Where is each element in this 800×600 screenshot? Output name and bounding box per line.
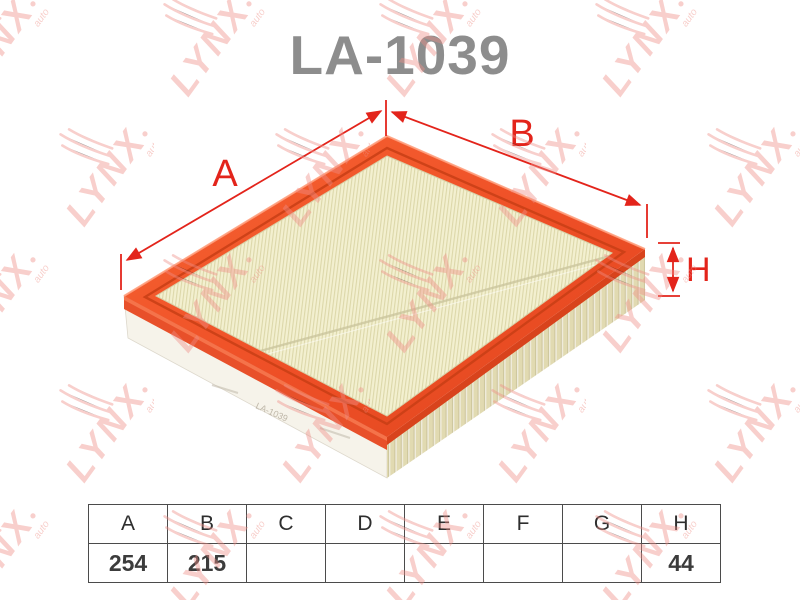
header-cell-a: A: [89, 505, 168, 544]
value-cell-c: [247, 544, 326, 583]
value-cell-f: [484, 544, 563, 583]
part-number-title: LA-1039: [0, 28, 800, 83]
dimension-b-label: B: [509, 113, 534, 155]
header-cell-d: D: [326, 505, 405, 544]
header-cell-b: B: [168, 505, 247, 544]
header-cell-c: C: [247, 505, 326, 544]
value-cell-d: [326, 544, 405, 583]
dimensions-table-value-row: 254 215 44: [89, 544, 721, 583]
header-cell-h: H: [642, 505, 721, 544]
dimension-a-label: A: [212, 153, 238, 195]
value-cell-a: 254: [89, 544, 168, 583]
header-cell-e: E: [405, 505, 484, 544]
dimension-h-label: H: [686, 251, 711, 289]
value-cell-e: [405, 544, 484, 583]
value-cell-b: 215: [168, 544, 247, 583]
header-cell-f: F: [484, 505, 563, 544]
dimensions-table-header-row: A B C D E F G H: [89, 505, 721, 544]
value-cell-h: 44: [642, 544, 721, 583]
value-cell-g: [563, 544, 642, 583]
dimensions-table: A B C D E F G H 254 215 44: [88, 504, 721, 583]
header-cell-g: G: [563, 505, 642, 544]
